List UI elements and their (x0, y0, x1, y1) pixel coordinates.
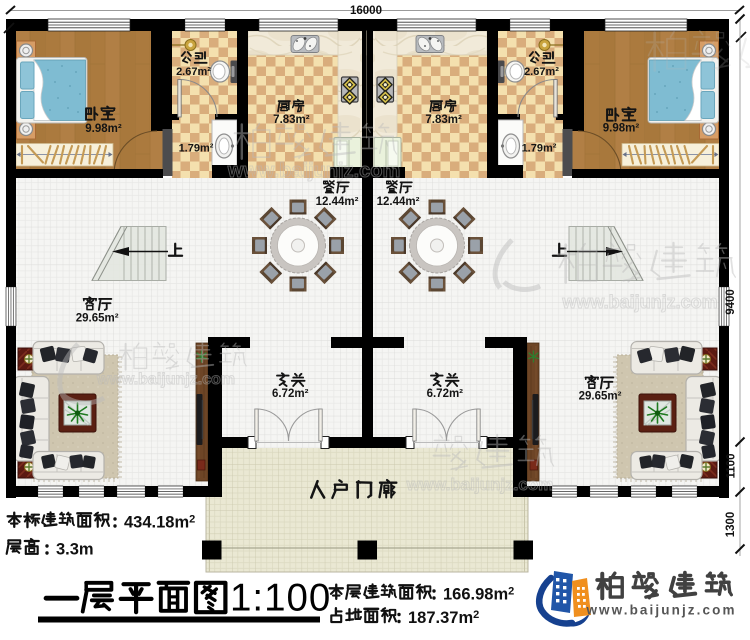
svg-text:6.72m²: 6.72m² (272, 388, 309, 400)
svg-text:29.65m²: 29.65m² (76, 313, 119, 325)
svg-text:www.baijunjz.com: www.baijunjz.com (585, 603, 736, 618)
svg-text:434.18m2: 434.18m2 (124, 514, 195, 532)
svg-text:www.baijunjz.com: www.baijunjz.com (227, 160, 401, 182)
svg-text:www.baijunjz.com: www.baijunjz.com (561, 292, 717, 312)
svg-text:6.72m²: 6.72m² (427, 388, 464, 400)
svg-text:1.79m²: 1.79m² (179, 143, 214, 155)
svg-text:9400: 9400 (725, 289, 737, 315)
svg-text:1.79m²: 1.79m² (522, 143, 557, 155)
svg-text:2.67m²: 2.67m² (524, 66, 559, 78)
svg-text:12.44m²: 12.44m² (377, 196, 420, 208)
svg-text:29.65m²: 29.65m² (579, 391, 622, 403)
svg-text:9.98m²: 9.98m² (85, 123, 122, 135)
svg-text:2.67m²: 2.67m² (176, 66, 211, 78)
svg-text:166.98m2: 166.98m2 (443, 586, 514, 604)
svg-text:1100: 1100 (726, 454, 738, 479)
svg-text:www.baijunjz.com: www.baijunjz.com (96, 371, 235, 388)
svg-text:12.44m²: 12.44m² (316, 196, 359, 208)
svg-text:1300: 1300 (725, 512, 737, 538)
svg-text:16000: 16000 (350, 5, 382, 17)
svg-text:7.83m²: 7.83m² (425, 114, 462, 126)
svg-text:1:100: 1:100 (230, 577, 331, 620)
svg-text:187.37m2: 187.37m2 (408, 609, 479, 627)
svg-text:9.98m²: 9.98m² (603, 122, 640, 134)
svg-text:www.baijunjz.com: www.baijunjz.com (406, 475, 554, 494)
svg-text:3.3m: 3.3m (56, 541, 94, 559)
